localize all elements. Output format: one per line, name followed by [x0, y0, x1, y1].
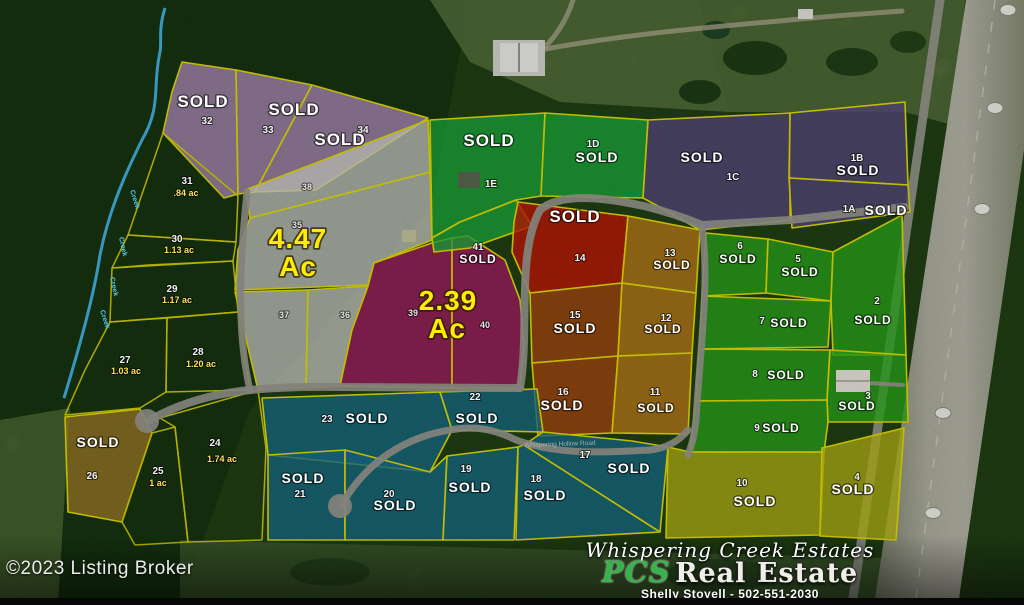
lot-34-number: 34: [357, 125, 369, 136]
lot-5-number: 5: [795, 254, 801, 265]
lot-10-number: 10: [736, 478, 748, 489]
lot-28-number: 28: [192, 347, 204, 358]
lot-6-status: SOLD: [719, 252, 756, 266]
lot-5-status: SOLD: [781, 265, 818, 279]
lot-18-status: SOLD: [524, 487, 567, 503]
lot-39-number: 39: [408, 308, 418, 318]
lot-22-status: SOLD: [456, 410, 499, 426]
lot-27-number: 27: [119, 355, 131, 366]
lot-23-status: SOLD: [346, 410, 389, 426]
magenta-tract-acre-unit: Ac: [428, 313, 466, 344]
lot-17-number: 17: [579, 450, 591, 461]
lot-38-number: 38: [302, 182, 312, 192]
lot-21-status: SOLD: [282, 470, 325, 486]
lot-11-status: SOLD: [637, 401, 674, 415]
lot-23-number: 23: [321, 414, 333, 425]
lot-36-number: 36: [340, 310, 350, 320]
lot-14-status: SOLD: [549, 207, 600, 226]
lot-24-number: 24: [209, 438, 221, 449]
lot-25-acreage: 1 ac: [149, 478, 167, 488]
brokerage-word-text: Real Estate: [675, 558, 858, 589]
lot-15-status: SOLD: [554, 320, 597, 336]
lot-24-acreage: 1.74 ac: [207, 454, 237, 464]
lot-1E-status: SOLD: [463, 131, 514, 150]
lot-31-number: 31: [181, 176, 193, 187]
brokerage-name-line: PCS Real Estate: [556, 558, 904, 588]
lot-17-status: SOLD: [608, 460, 651, 476]
lot-37-number: 37: [279, 310, 289, 320]
lot-26-status: SOLD: [77, 434, 120, 450]
lot-9-number: 9: [754, 423, 760, 434]
lot-1B-status: SOLD: [837, 162, 880, 178]
bottom-black-bar: [0, 598, 1024, 605]
lot-29-number: 29: [166, 284, 178, 295]
lot-2-status: SOLD: [854, 313, 891, 327]
lot-13-status: SOLD: [653, 258, 690, 272]
gray-tract-acreage: 4.47: [269, 223, 328, 254]
lot-7-number: 7: [759, 316, 765, 327]
lot-32-status: SOLD: [177, 92, 228, 111]
lot-1A-status: SOLD: [865, 202, 908, 218]
lot-30-number: 30: [171, 234, 183, 245]
lot-33-status: SOLD: [268, 100, 319, 119]
lot-40-number: 40: [480, 320, 490, 330]
lot-2-number: 2: [874, 296, 880, 307]
lot-33-number: 33: [262, 125, 274, 136]
lot-32-number: 32: [201, 116, 213, 127]
lot-19-number: 19: [460, 464, 472, 475]
brokerage-logo: Whispering Creek Estates PCS Real Estate…: [556, 540, 904, 600]
lot-21-number: 21: [294, 489, 306, 500]
lot-8-number: 8: [752, 369, 758, 380]
lot-1E-number: 1E: [485, 179, 498, 190]
copyright-text: ©2023 Listing Broker: [6, 558, 194, 580]
photo-grain: [0, 0, 1024, 605]
brokerage-script-text: PCS: [602, 555, 671, 589]
lot-22-number: 22: [469, 392, 481, 403]
lot-1A-number: 1A: [843, 204, 856, 215]
lot-18-number: 18: [530, 474, 542, 485]
lot-26-number: 26: [86, 471, 98, 482]
lot-14-number: 14: [574, 253, 586, 264]
lot-29-acreage: 1.17 ac: [162, 295, 192, 305]
lot-16-status: SOLD: [541, 397, 584, 413]
lot-10-status: SOLD: [734, 493, 777, 509]
lot-20-status: SOLD: [374, 497, 417, 513]
lot-30-acreage: 1.13 ac: [164, 245, 194, 255]
aerial-plat-svg: Whispering Hollow Road Creek Creek Creek…: [0, 0, 1024, 605]
lot-25-number: 25: [152, 466, 164, 477]
lot-19-status: SOLD: [449, 479, 492, 495]
lot-31-acreage: .84 ac: [173, 188, 198, 198]
lot-9-status: SOLD: [762, 421, 799, 435]
lot-12-status: SOLD: [644, 322, 681, 336]
lot-28-acreage: 1.20 ac: [186, 359, 216, 369]
lot-41-status: SOLD: [459, 252, 496, 266]
plat-map-image: Whispering Hollow Road Creek Creek Creek…: [0, 0, 1024, 605]
lot-8-status: SOLD: [767, 368, 804, 382]
lot-11-number: 11: [650, 387, 661, 398]
lot-7-status: SOLD: [770, 316, 807, 330]
lot-1C-number: 1C: [727, 172, 740, 183]
gray-tract-acre-unit: Ac: [279, 251, 317, 282]
lot-6-number: 6: [737, 241, 743, 252]
lot-1C-status: SOLD: [681, 149, 724, 165]
lot-1D-status: SOLD: [576, 149, 619, 165]
magenta-tract-acreage: 2.39: [419, 285, 478, 316]
lot-27-acreage: 1.03 ac: [111, 366, 141, 376]
lot-3-status: SOLD: [838, 399, 875, 413]
lot-4-status: SOLD: [832, 481, 875, 497]
